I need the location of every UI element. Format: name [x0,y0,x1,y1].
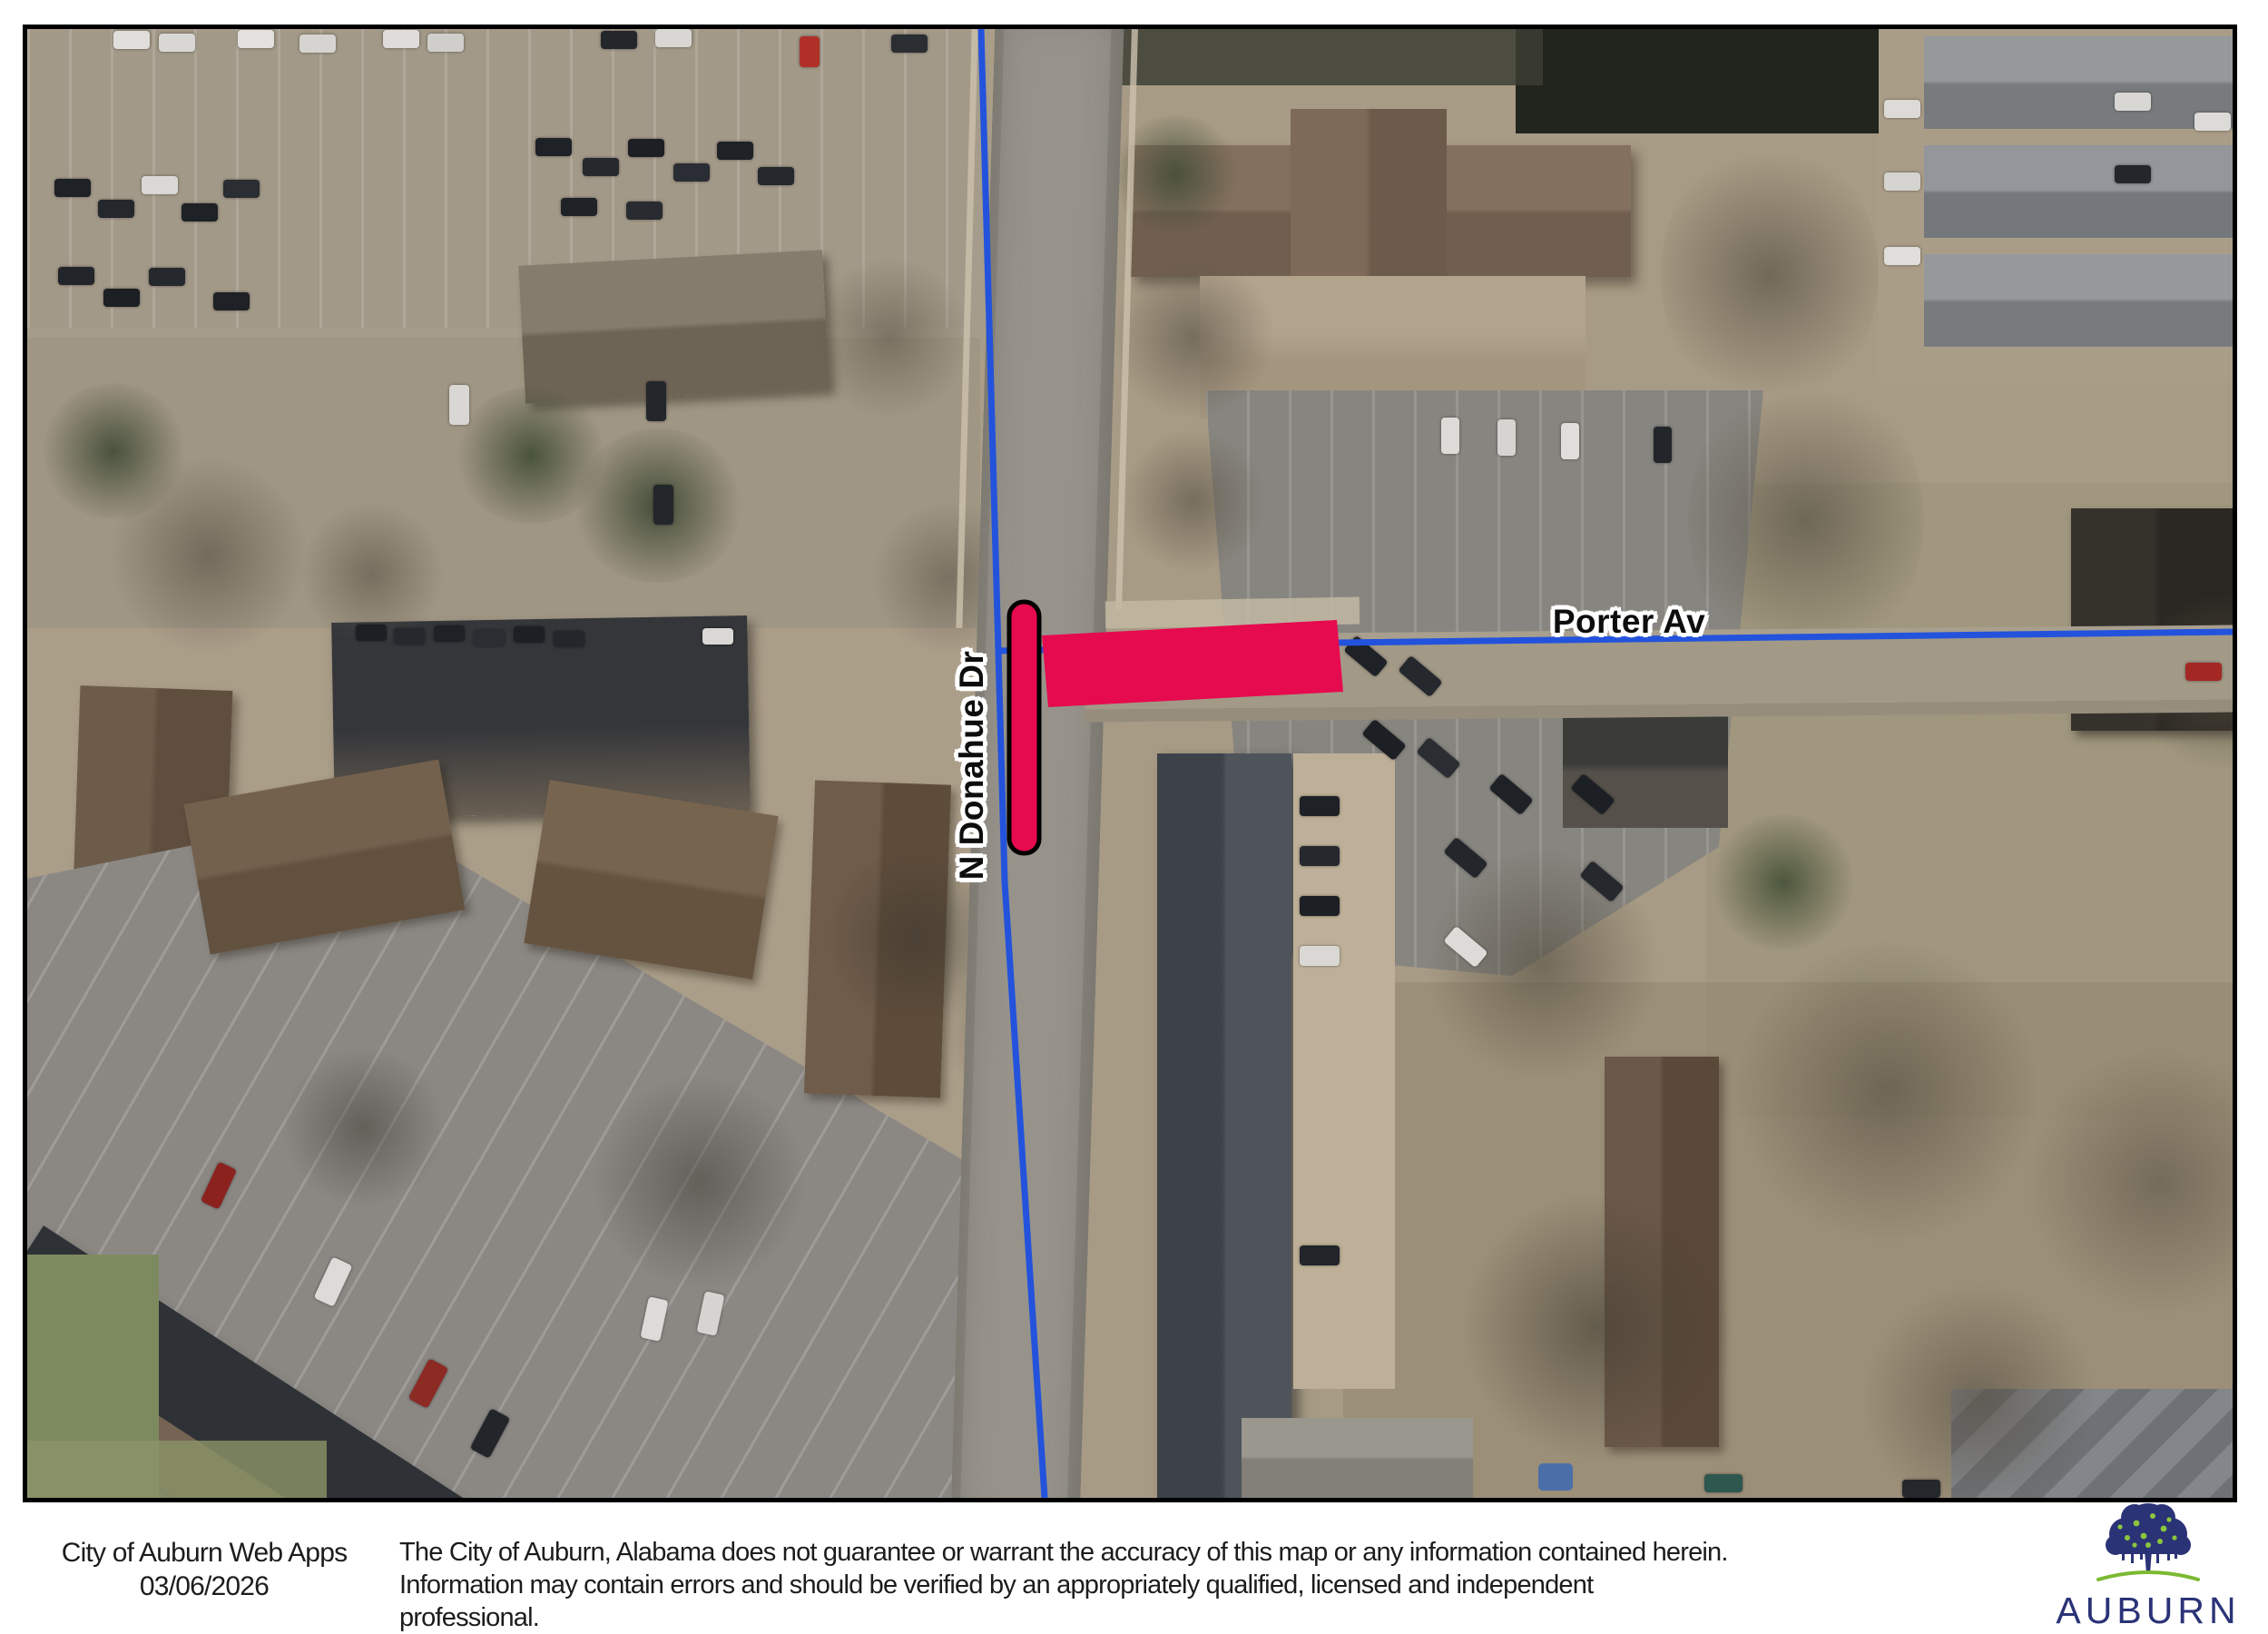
street-label-porter-av: Porter Av [1520,603,1738,641]
auburn-logo-text: AUBURN [2044,1590,2253,1632]
map-date: 03/06/2026 [23,1570,386,1603]
street-label-n-donahue-dr: N Donahue Dr [953,615,991,915]
map-annotation-layer [27,29,2233,1498]
disclaimer-line-1: The City of Auburn, Alabama does not gua… [399,1536,1733,1569]
auburn-tree-icon [2080,1500,2216,1587]
disclaimer-line-2: Information may contain errors and shoul… [399,1569,1733,1634]
map-canvas[interactable]: Porter Av N Donahue Dr [23,25,2237,1502]
auburn-logo: AUBURN [2044,1500,2253,1631]
footer-app-info: City of Auburn Web Apps 03/06/2026 [23,1536,386,1603]
highlight-road-segment-pill[interactable] [1009,602,1039,853]
print-map-page: Porter Av N Donahue Dr City of Auburn We… [0,0,2268,1634]
highlight-parcel-rectangle[interactable] [1042,620,1343,707]
app-title: City of Auburn Web Apps [23,1536,386,1570]
disclaimer: The City of Auburn, Alabama does not gua… [399,1536,1733,1634]
